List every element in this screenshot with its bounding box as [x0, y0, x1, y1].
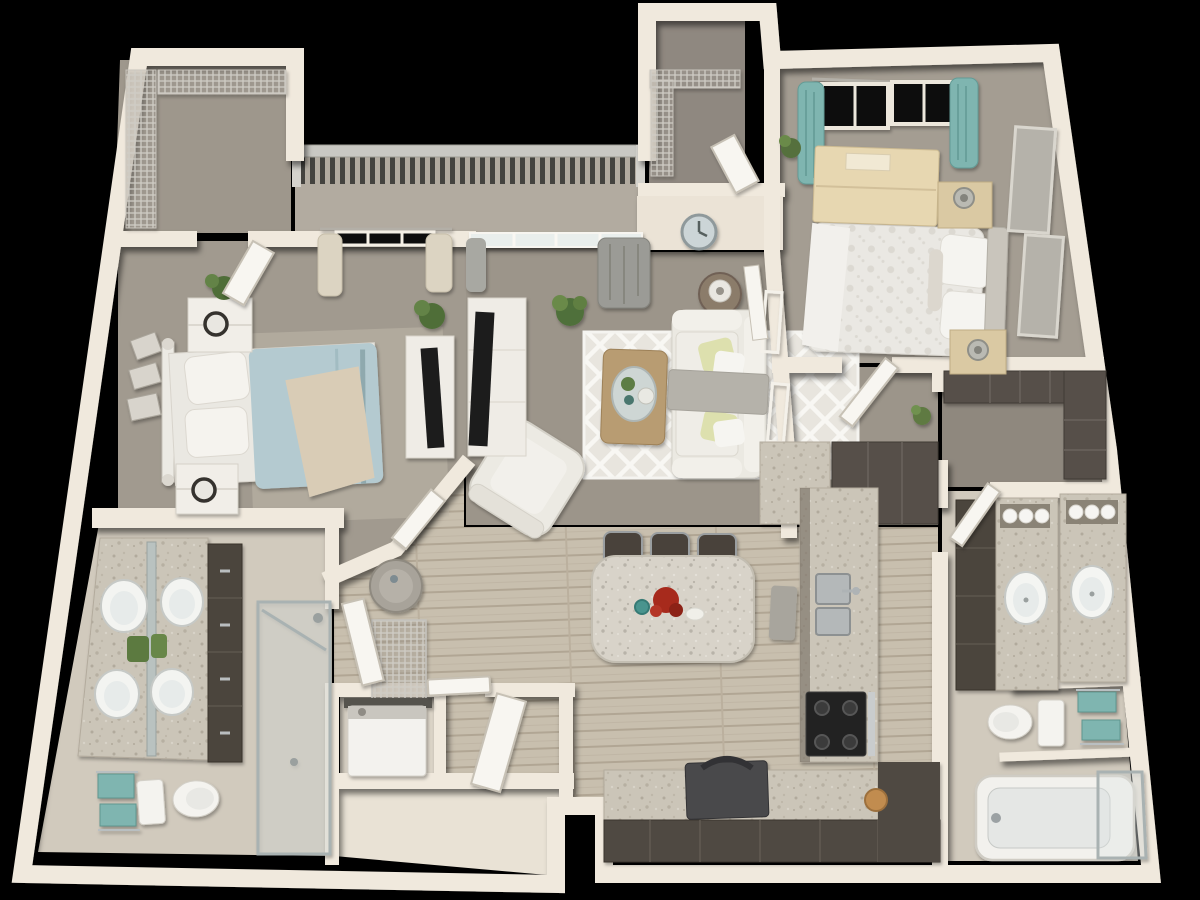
closet2-wire-shelf-left: [651, 80, 673, 176]
sofa-throw: [667, 369, 769, 414]
bath1-shower-glass: [258, 602, 330, 854]
bath2-towel-1: [1003, 509, 1017, 523]
bathtub-faucet: [991, 813, 1001, 823]
bedroom-curtain-left: [318, 234, 342, 296]
stove-burner-4: [843, 735, 857, 749]
kitchen-sink-basin-2: [816, 608, 850, 635]
laundry-appliance-dial: [358, 708, 366, 716]
sofa-pillow-white-2: [712, 418, 745, 448]
bath2-toilet-seat: [993, 712, 1019, 732]
tray-bottle: [624, 395, 634, 405]
living-plant-leaf1: [552, 295, 568, 311]
living-curtain-left: [466, 238, 486, 292]
bath1-shower-head: [313, 613, 323, 623]
bath2-towel-2: [1019, 509, 1033, 523]
bath1-sink-2-basin: [169, 589, 195, 619]
master-closet-cabinet-right: [1064, 371, 1106, 479]
tray-dish: [638, 388, 654, 404]
bath1-plant-1: [127, 636, 149, 662]
closet1-wire-shelf-left: [126, 70, 156, 228]
bath1-sink-4-basin: [159, 680, 185, 708]
bath1-teal-towel-2: [100, 804, 136, 826]
sofa-arm-top: [672, 310, 742, 330]
stove-burner-3: [815, 735, 829, 749]
stove-burner-2: [843, 701, 857, 715]
master-lamp-b-finial: [974, 346, 982, 354]
master-bed-pillow-1: [936, 233, 994, 289]
closet1-wire-shelf-top: [158, 70, 286, 94]
kitchen-sink-basin-1: [816, 574, 850, 604]
master-teal-curtain-right: [950, 78, 978, 168]
master-wall-art-2: [1019, 235, 1064, 337]
bath1-teal-towel-1: [98, 774, 134, 798]
island-dish: [686, 608, 704, 620]
balcony-railing-top: [291, 145, 645, 157]
bed1-post-bottom: [162, 474, 174, 486]
bathtub-basin: [988, 788, 1110, 848]
hall-round-table-top: [379, 569, 413, 603]
door-laundry-closet: [428, 676, 491, 695]
bath2-towel-6: [1101, 505, 1115, 519]
tray-plant: [621, 377, 635, 391]
kitchen-corner-cabinet: [878, 762, 940, 862]
bath1-sink-1-basin: [110, 591, 138, 625]
floorplan-3d-render: [0, 0, 1200, 900]
master-lamp-a-finial: [960, 194, 968, 202]
sofa-arm-bottom: [672, 458, 742, 478]
island-flowers-3: [650, 605, 662, 617]
bedroom-plant-b: [205, 274, 219, 288]
stove-burner-1: [815, 701, 829, 715]
bath2-towel-5: [1085, 505, 1099, 519]
kitchen-floor-mat: [769, 585, 798, 640]
bedroom-curtain-right: [426, 234, 452, 292]
bath2-sink-2-drain: [1090, 592, 1095, 597]
bath1-sink-3-basin: [104, 681, 130, 711]
living-plant-leaf2: [573, 296, 587, 310]
cutting-board: [865, 789, 887, 811]
master-bed-bolster: [927, 249, 943, 311]
wall-bath2-divider2: [1004, 752, 1134, 757]
hall-table-bottle: [390, 575, 398, 583]
bedroom-corner-plant-leaf: [414, 300, 430, 316]
bath1-cabinet: [208, 544, 242, 762]
hallway-plant-leaf: [911, 405, 921, 415]
island-teal-bowl: [635, 600, 649, 614]
floorplan-svg: [0, 0, 1200, 900]
stove: [806, 692, 866, 756]
bath2-towel-4: [1069, 505, 1083, 519]
nightstand-1b-lamp: [193, 479, 215, 501]
bath1-shower-drain: [290, 758, 298, 766]
bedroom-window: [336, 232, 434, 245]
master-dresser-decor: [846, 153, 891, 171]
bath2-towel-3: [1035, 509, 1049, 523]
balcony-railing-balusters: [295, 154, 641, 184]
bath2-teal-towel-2: [1082, 720, 1120, 740]
master-corner-plant-leaf: [779, 135, 791, 147]
master-wall-art-1: [1008, 127, 1055, 234]
bath1-plant-2: [151, 634, 167, 658]
bath2-toilet-tank: [1038, 700, 1064, 746]
bed1-post-top: [162, 338, 174, 350]
island-flowers-2: [669, 603, 683, 617]
bath2-teal-towel-1: [1078, 692, 1116, 712]
bath2-sink-1-drain: [1024, 598, 1029, 603]
oven-handle: [868, 692, 875, 756]
hall-wire-rack: [372, 620, 426, 700]
bathtub-glass-panel: [1098, 772, 1146, 858]
bed1-pillow-2: [184, 406, 249, 458]
kitchen-faucet: [852, 587, 860, 595]
side-table-lamp-finial: [716, 287, 724, 295]
countertop-bin: [685, 761, 769, 820]
bath1-toilet-tank: [137, 779, 166, 825]
nightstand-1a-lamp: [205, 313, 227, 335]
bed1-pillow-1: [183, 350, 250, 405]
